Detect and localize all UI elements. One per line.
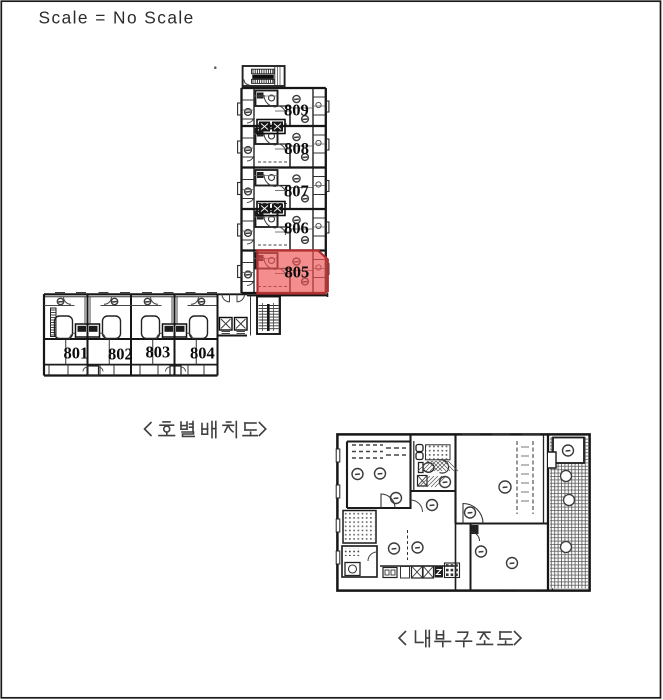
svg-text:803: 803 (146, 342, 171, 361)
svg-text:805: 805 (285, 263, 310, 282)
svg-text:804: 804 (190, 344, 215, 363)
svg-text:808: 808 (284, 139, 309, 158)
svg-text:807: 807 (284, 182, 309, 201)
svg-text:809: 809 (284, 101, 309, 120)
svg-text:801: 801 (64, 344, 89, 363)
svg-text:Scale = No Scale: Scale = No Scale (39, 8, 195, 28)
svg-text:806: 806 (284, 219, 309, 238)
svg-text:802: 802 (108, 345, 133, 364)
